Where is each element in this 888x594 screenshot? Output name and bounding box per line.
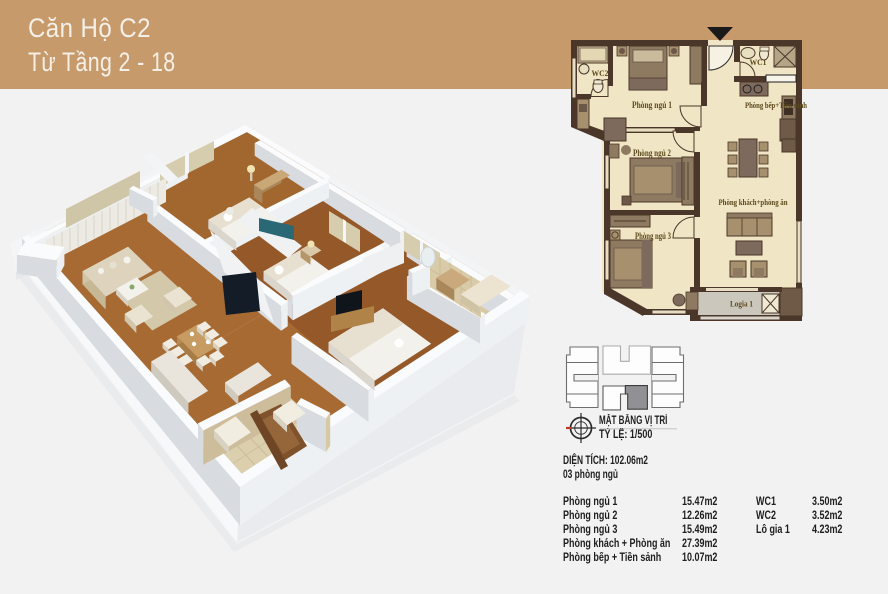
svg-text:Phòng bếp+Tiền sảnh: Phòng bếp+Tiền sảnh <box>745 100 807 110</box>
svg-text:Phòng ngủ 3: Phòng ngủ 3 <box>635 231 671 241</box>
svg-text:Logia 1: Logia 1 <box>730 299 753 309</box>
svg-text:Phòng khách+phòng ăn: Phòng khách+phòng ăn <box>719 197 788 207</box>
svg-text:Phòng ngủ 1: Phòng ngủ 1 <box>632 100 672 110</box>
svg-text:Phòng ngủ 2: Phòng ngủ 2 <box>633 148 671 158</box>
svg-text:WC2: WC2 <box>592 69 609 78</box>
svg-text:WC1: WC1 <box>750 58 767 67</box>
